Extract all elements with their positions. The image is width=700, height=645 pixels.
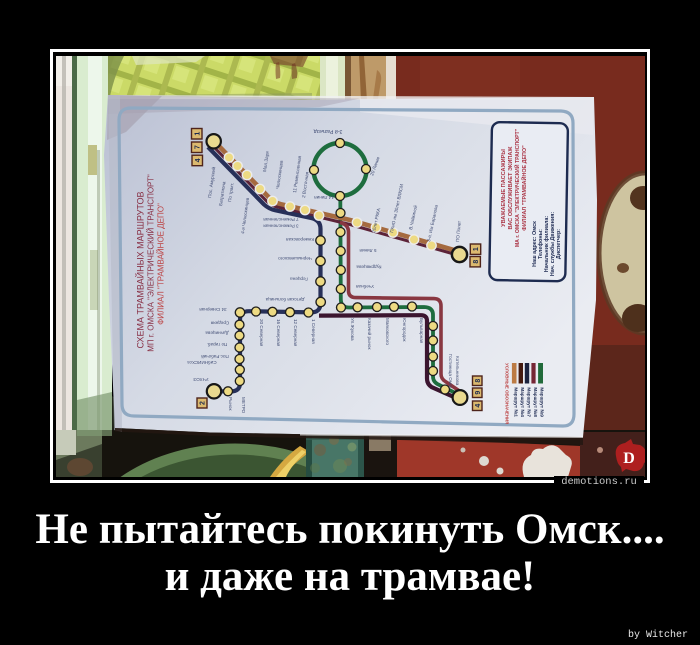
- svg-text:1: 1: [194, 132, 201, 136]
- svg-text:3-й Разъезд: 3-й Разъезд: [314, 128, 343, 135]
- svg-text:Учебная: Учебная: [355, 284, 374, 289]
- svg-text:По тираб.: По тираб.: [207, 342, 228, 347]
- svg-text:8: 8: [473, 260, 480, 264]
- svg-text:12 Северная: 12 Северная: [293, 319, 298, 347]
- svg-text:Дачницева: Дачницева: [205, 331, 229, 336]
- svg-text:1 Северная: 1 Северная: [311, 319, 316, 344]
- svg-text:Чернышевского: Чернышевского: [278, 256, 312, 261]
- svg-text:Пос.Рабочий: Пос.Рабочий: [201, 354, 229, 360]
- svg-text:Маршрут №1: Маршрут №1: [514, 387, 519, 417]
- svg-text:3 Ременсленная: 3 Ременсленная: [263, 224, 299, 229]
- svg-text:Юнгородок: Юнгородок: [402, 318, 407, 343]
- svg-text:Кемеровская: Кемеровская: [286, 237, 314, 242]
- svg-text:Гостиница Омск: Гостиница Омск: [448, 354, 453, 389]
- svg-text:20 Северная: 20 Северная: [259, 319, 264, 347]
- svg-text:МП г. ОМСКА "ЭЛЕКТРИЧЕСКИЙ ТРА: МП г. ОМСКА "ЭЛЕКТРИЧЕСКИЙ ТРАНСПОРТ": [147, 174, 156, 352]
- svg-text:Маршрут №4: Маршрут №4: [520, 387, 525, 417]
- svg-text:7 Ременсленная: 7 Ременсленная: [263, 217, 299, 222]
- svg-text:ФИЛИАЛ "ТРАМВАЙНОЕ ДЕПО": ФИЛИАЛ "ТРАМВАЙНОЕ ДЕПО": [157, 203, 166, 325]
- svg-text:7: 7: [194, 145, 201, 149]
- svg-text:СХЕМА ТРАМВАЙНЫХ МАРШРУТОВ: СХЕМА ТРАМВАЙНЫХ МАРШРУТОВ: [135, 192, 146, 349]
- svg-text:8: 8: [475, 379, 482, 383]
- svg-text:D: D: [623, 450, 635, 467]
- svg-text:4: 4: [195, 158, 202, 162]
- svg-text:УЧХОЗ: УЧХОЗ: [193, 377, 208, 382]
- svg-text:4: 4: [475, 404, 482, 408]
- svg-text:Бульварная: Бульварная: [419, 318, 424, 344]
- svg-text:МЕТРО: МЕТРО: [241, 397, 246, 414]
- svg-text:Ул.Жукова: Ул.Жукова: [350, 318, 355, 341]
- svg-text:Котельникова: Котельникова: [455, 356, 460, 386]
- svg-text:ВАС ОБСЛУЖИВАЕТ ЭКИПАЖ: ВАС ОБСЛУЖИВАЕТ ЭКИПАЖ: [508, 146, 514, 230]
- svg-text:УСЛОВНЫЕ ОБОЗНАЧЕНИЯ: УСЛОВНЫЕ ОБОЗНАЧЕНИЯ: [505, 363, 510, 424]
- svg-text:Телефоны:: Телефоны:: [537, 229, 544, 259]
- svg-text:УВАЖАЕМЫЕ ПАССАЖИРЫ: УВАЖАЕМЫЕ ПАССАЖИРЫ: [501, 149, 507, 227]
- svg-text:Средняя: Средняя: [210, 321, 229, 326]
- svg-text:Начальник филиала:: Начальник филиала:: [543, 216, 550, 273]
- svg-text:16 Северная: 16 Северная: [276, 319, 281, 347]
- svg-text:9: 9: [475, 391, 482, 395]
- svg-text:Маршрут №8: Маршрут №8: [533, 387, 538, 417]
- svg-text:Маршрут №9: Маршрут №9: [540, 387, 545, 417]
- svg-text:14 Линия: 14 Линия: [314, 195, 334, 200]
- svg-text:2: 2: [200, 401, 207, 405]
- svg-text:Кудрявцева: Кудрявцева: [356, 265, 381, 270]
- svg-text:1: 1: [473, 247, 480, 251]
- svg-text:СибНИИСХоз: СибНИИСХоз: [187, 360, 216, 365]
- svg-text:Детская больница: Детская больница: [265, 297, 304, 302]
- svg-text:ФИЛИАЛ "ТРАМВАЙНОЕ ДЕПО": ФИЛИАЛ "ТРАМВАЙНОЕ ДЕПО": [520, 145, 528, 231]
- svg-text:5 Линия: 5 Линия: [359, 248, 377, 253]
- svg-text:Нач. службы Движения:: Нач. службы Движения:: [549, 212, 556, 276]
- svg-text:МА г. ОМСКА "ЭЛЕКТРИЧЕСКИЙ ТРА: МА г. ОМСКА "ЭЛЕКТРИЧЕСКИЙ ТРАНСПОРТ": [513, 128, 521, 247]
- svg-text:Казачий рынок: Казачий рынок: [367, 318, 373, 350]
- svg-text:Рынок: Рынок: [228, 397, 233, 411]
- svg-text:34 Северная: 34 Северная: [199, 307, 227, 312]
- svg-text:Диспетчер:: Диспетчер:: [556, 229, 562, 259]
- svg-text:Маяковского: Маяковского: [385, 318, 390, 345]
- svg-text:Герцена: Герцена: [290, 277, 308, 282]
- svg-text:Маршрут №7: Маршрут №7: [526, 387, 531, 417]
